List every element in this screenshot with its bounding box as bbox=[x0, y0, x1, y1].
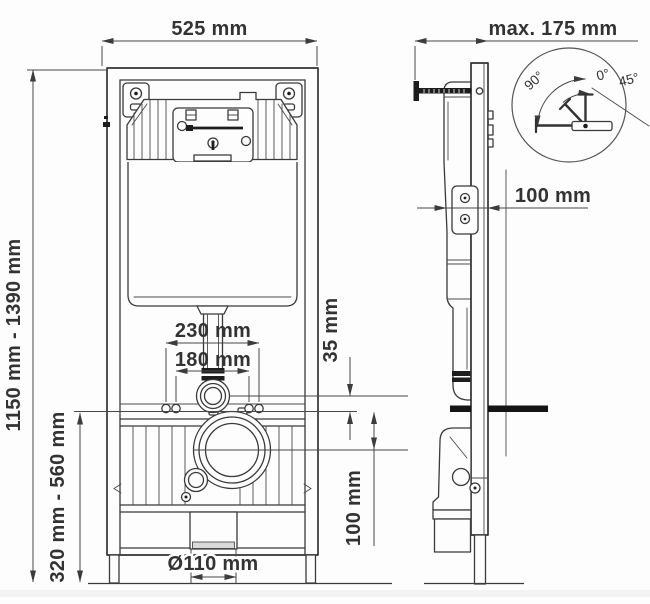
pivot-point bbox=[583, 124, 588, 129]
label-frame-height: 1150 mm - 1390 mm bbox=[3, 238, 25, 431]
rail-anchor-hole bbox=[476, 88, 482, 94]
frame-foot-left bbox=[110, 555, 120, 583]
detail-circle bbox=[512, 48, 626, 162]
pivot-base-plate bbox=[572, 122, 612, 131]
side-pipe-band bbox=[452, 371, 472, 376]
angle-45-leader bbox=[592, 88, 649, 126]
side-mounting-plate bbox=[452, 186, 478, 234]
side-view bbox=[414, 63, 549, 584]
label-angle-0: 0° bbox=[595, 66, 611, 84]
label-outlet-offset: 100 mm bbox=[343, 470, 365, 546]
cistern-body bbox=[128, 162, 297, 306]
fixing-stud-bar bbox=[450, 406, 548, 413]
wc-frame-installation-drawing: 525 mm max. 175 mm 1150 mm - 1390 mm 320… bbox=[0, 0, 650, 604]
access-panel bbox=[173, 108, 253, 162]
label-angle-45: 45° bbox=[617, 70, 640, 89]
flush-connection bbox=[197, 380, 230, 413]
panel-bottom-bar bbox=[194, 155, 231, 161]
labels: 525 mm max. 175 mm 1150 mm - 1390 mm 320… bbox=[3, 18, 641, 583]
panel-screw-right bbox=[242, 137, 251, 146]
stud-45deg bbox=[565, 104, 583, 123]
dim-frame-width bbox=[102, 41, 317, 66]
angle-sweep-arc bbox=[538, 79, 586, 127]
panel-screw-left bbox=[178, 122, 187, 131]
mounting-rail bbox=[471, 63, 488, 584]
rail-foot bbox=[475, 535, 486, 584]
label-angle-90: 90° bbox=[521, 68, 546, 93]
label-flush-pipe-width: 230 mm bbox=[175, 320, 251, 342]
label-wall-distance: max. 175 mm bbox=[489, 18, 618, 40]
angle-detail bbox=[512, 48, 649, 162]
label-outlet-height: 320 mm - 560 mm bbox=[47, 411, 69, 582]
side-pipe-band bbox=[452, 378, 472, 383]
technical-drawing-page: 525 mm max. 175 mm 1150 mm - 1390 mm 320… bbox=[0, 0, 650, 604]
floor-line bbox=[0, 584, 650, 598]
pivot-diagram bbox=[536, 95, 612, 133]
label-outlet-diameter: Ø110 mm bbox=[167, 553, 258, 575]
label-stud-width: 180 mm bbox=[175, 349, 251, 371]
fill-valve-block bbox=[186, 125, 193, 131]
label-frame-width: 525 mm bbox=[171, 18, 247, 40]
label-flush-offset: 35 mm bbox=[320, 298, 342, 363]
frame-foot-right bbox=[306, 555, 316, 583]
rail-conduits bbox=[488, 111, 493, 147]
outlet-stub bbox=[190, 512, 237, 549]
label-bracket-depth: 100 mm bbox=[515, 185, 591, 207]
